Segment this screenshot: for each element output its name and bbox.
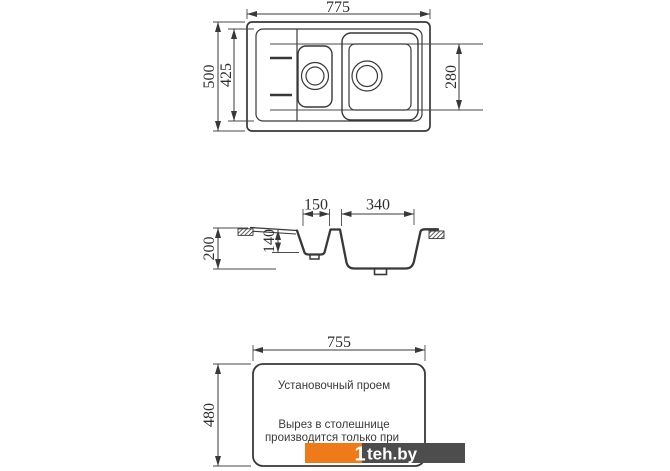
main-bowl-inner	[349, 44, 411, 110]
dimension-cutout-width: 755	[253, 334, 425, 361]
small-bowl-drain-stub	[310, 255, 319, 260]
total-depth-label: 200	[201, 237, 218, 261]
dimension-overall-width: 775	[247, 0, 430, 19]
cutout-width-label: 755	[327, 334, 351, 351]
sink-outer-rim	[247, 22, 430, 131]
overall-width-label: 775	[326, 0, 350, 16]
small-bowl	[298, 46, 332, 107]
dimension-main-bowl-depth: 280	[443, 44, 460, 110]
technical-drawing-svg: 775 500 425 280	[0, 0, 670, 471]
dimension-cutout-height: 480	[201, 364, 251, 466]
top-view: 775 500 425 280	[201, 0, 483, 131]
section-view: 150 340 200 140	[201, 197, 444, 275]
main-bowl-width-label: 340	[366, 197, 390, 214]
cutout-note-line1: Вырез в столешнице	[278, 419, 389, 431]
main-bowl-depth-label: 280	[443, 65, 460, 89]
cutout-note-line2: производится только при	[265, 432, 399, 444]
small-bowl-drain-inner	[306, 67, 324, 85]
small-bowl-width-label: 150	[304, 197, 328, 214]
overall-depth-label: 500	[201, 65, 218, 89]
dimension-small-bowl-width: 150	[303, 197, 330, 227]
sink-inner-rim	[256, 29, 422, 121]
sink-dimension-drawing: 775 500 425 280	[0, 0, 670, 471]
watermark-teh-by: 1 teh.by	[305, 443, 465, 466]
main-bowl-drain-inner	[357, 66, 378, 87]
right-mounting-clip	[429, 231, 444, 239]
dimension-inner-depth: 425	[218, 29, 254, 121]
section-profile	[297, 229, 438, 268]
watermark-logo-one: 1	[354, 444, 365, 466]
main-bowl-outer	[342, 33, 418, 120]
watermark-orange-block	[305, 443, 362, 463]
dimension-main-bowl-width: 340	[342, 197, 415, 227]
watermark-site-text: teh.by	[367, 445, 418, 464]
left-mounting-clip	[238, 229, 253, 236]
cutout-title: Установочный проем	[278, 380, 390, 392]
small-bowl-depth-label: 140	[261, 229, 278, 253]
cutout-height-label: 480	[201, 403, 218, 427]
inner-depth-label: 425	[218, 63, 235, 87]
